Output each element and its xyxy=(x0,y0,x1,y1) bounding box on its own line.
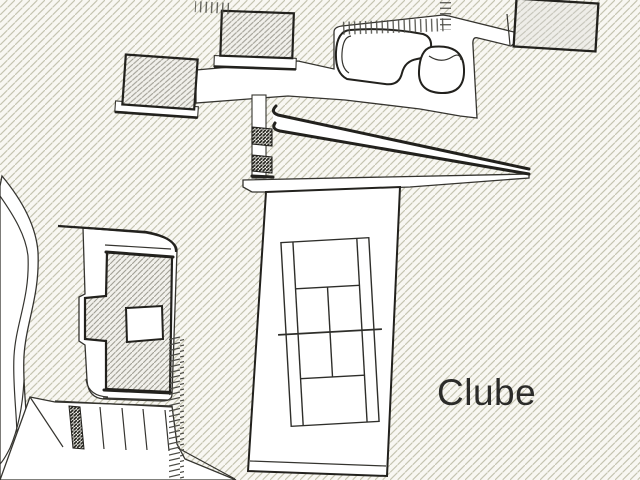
tick-band-top-left xyxy=(195,1,230,14)
site-plan-canvas: Clube xyxy=(0,0,640,480)
building-b xyxy=(214,11,298,70)
building-a xyxy=(115,54,202,118)
tick-band-deck-corner xyxy=(440,0,451,30)
building-a-roof xyxy=(122,55,197,110)
building-c-roof xyxy=(514,0,599,51)
site-label-clube: Clube xyxy=(437,372,536,413)
tick-band-slope-right xyxy=(169,336,184,480)
stair-base-edge xyxy=(252,176,273,177)
stair-flight-upper xyxy=(252,127,272,146)
pool-lobe-outline xyxy=(419,46,464,93)
stair-flight-lower xyxy=(252,155,272,173)
tennis-court xyxy=(248,187,400,476)
clubhouse-courtyard xyxy=(126,306,163,342)
building-c xyxy=(507,0,598,51)
building-b-roof xyxy=(220,11,294,58)
